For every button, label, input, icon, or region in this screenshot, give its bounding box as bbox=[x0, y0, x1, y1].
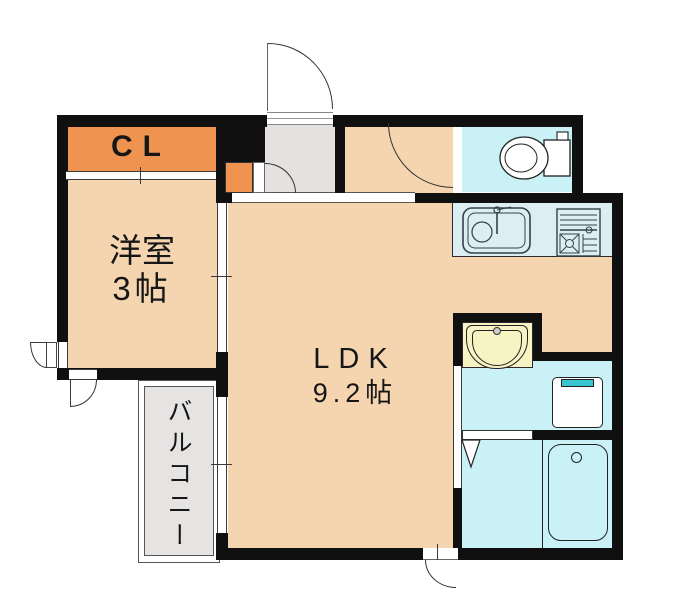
bathtub-faucet bbox=[571, 452, 582, 463]
wall-bathroom-top bbox=[533, 430, 612, 440]
balcony-label-text: バルコニー bbox=[164, 398, 192, 553]
south-window-leaf bbox=[70, 380, 71, 407]
floor-plan: CL 洋室 3帖 LDK 9.2帖 バルコニー bbox=[0, 0, 700, 613]
bathroom-divider bbox=[542, 440, 543, 548]
ldk-size: 9.2帖 bbox=[270, 376, 440, 410]
closet-door-tick bbox=[140, 167, 141, 184]
closet-label: CL bbox=[66, 130, 216, 164]
wall-ldk-west-mid bbox=[216, 352, 228, 397]
west-window-arc bbox=[30, 342, 47, 368]
balcony-window-tick bbox=[211, 464, 232, 465]
closet-sliding-door bbox=[66, 171, 216, 180]
western-room-name: 洋室 bbox=[62, 232, 222, 270]
wall-ldk-west-low bbox=[216, 533, 228, 548]
service-door-gap bbox=[423, 548, 458, 560]
western-room-size: 3帖 bbox=[62, 270, 222, 308]
wall-top-mid bbox=[333, 115, 583, 127]
wall-washroom-c bbox=[533, 352, 613, 361]
south-window-arc bbox=[70, 380, 97, 407]
toilet-icon bbox=[497, 128, 577, 184]
wall-washroom-a bbox=[453, 313, 542, 322]
balcony-window bbox=[217, 397, 227, 533]
toilet-door-gap bbox=[453, 127, 462, 192]
entrance-sill-line bbox=[267, 118, 333, 119]
wall-entry-right bbox=[335, 115, 345, 193]
gas-stove-icon bbox=[556, 208, 602, 258]
closet-label-text: CL bbox=[111, 130, 171, 163]
west-window-line bbox=[30, 342, 47, 343]
service-door-arc bbox=[425, 560, 456, 588]
washing-machine-panel bbox=[561, 379, 594, 387]
wall-toilet-right bbox=[572, 115, 583, 203]
ldk-name: LDK bbox=[270, 342, 440, 376]
washroom-floor-left bbox=[462, 368, 533, 430]
western-room-label: 洋室 3帖 bbox=[62, 232, 222, 308]
wall-entry-stub bbox=[216, 193, 232, 203]
entrance-door-arc bbox=[268, 43, 333, 109]
washroom-door-gap bbox=[453, 366, 462, 488]
washbasin-faucet bbox=[493, 327, 501, 335]
entry-door-leaf bbox=[253, 162, 265, 193]
south-window-gap bbox=[69, 369, 97, 380]
service-door-tick bbox=[437, 544, 438, 560]
wall-kitchen-top bbox=[415, 193, 623, 203]
balcony-label: バルコニー bbox=[162, 392, 196, 558]
west-window-gap bbox=[58, 342, 68, 368]
wall-bottom-left bbox=[216, 548, 423, 560]
wall-washroom-d-bottom bbox=[453, 488, 462, 548]
wall-bottom-right bbox=[458, 548, 623, 560]
shoe-box bbox=[225, 162, 253, 193]
bath-door-wedge bbox=[461, 439, 481, 469]
ldk-label: LDK 9.2帖 bbox=[270, 342, 440, 410]
wall-washroom-d-top bbox=[453, 313, 462, 366]
entry-step bbox=[232, 192, 415, 203]
wall-right bbox=[612, 193, 623, 560]
kitchen-sink-icon bbox=[459, 204, 535, 256]
west-window-leaf bbox=[46, 342, 57, 368]
